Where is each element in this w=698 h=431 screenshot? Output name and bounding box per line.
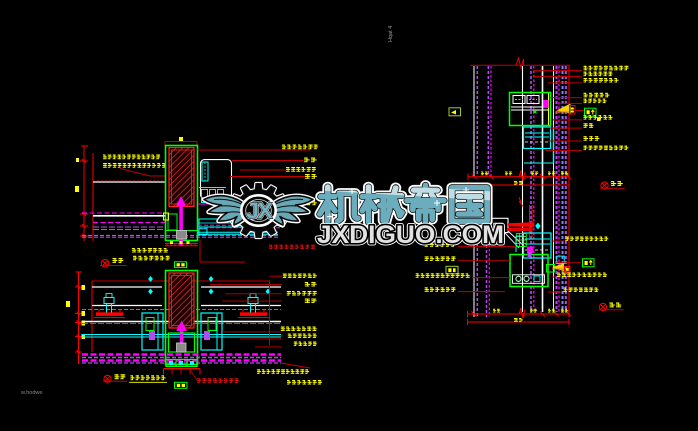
svg-text:w.hodwe: w.hodwe [20,390,42,396]
svg-text:JXDIGUO.COM: JXDIGUO.COM [317,221,504,249]
svg-text:JX: JX [246,198,273,224]
svg-text:Hqat 4: Hqat 4 [388,26,394,42]
